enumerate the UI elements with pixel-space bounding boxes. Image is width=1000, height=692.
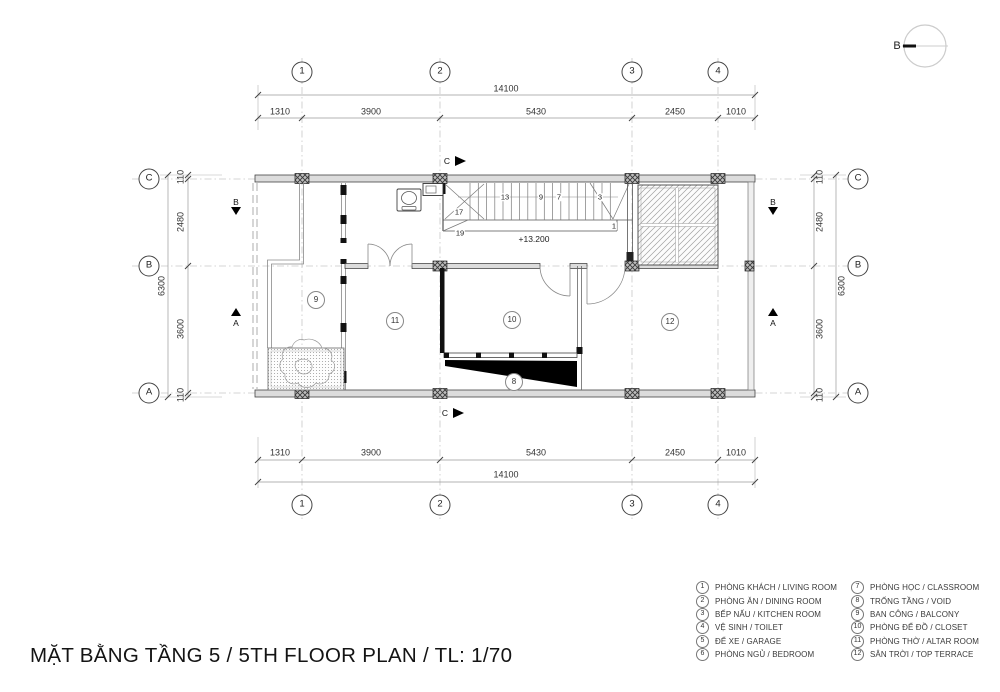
section-c-bottom-label: C [442, 408, 448, 418]
legend-label: PHÒNG ĂN / DINING ROOM [715, 597, 822, 606]
dim-top-seg-4: 1010 [726, 108, 746, 117]
legend-num: 8 [851, 595, 864, 608]
dim-right-seg-3: 110 [816, 388, 825, 402]
floor-plan-sheet: 1 2 3 4 1 2 3 4 C B A C B A 14100 1310 3… [0, 0, 1000, 692]
room-label-altar-room: 11 [386, 312, 404, 330]
room-label-closet: 10 [503, 311, 521, 329]
legend-item-classroom: 7 PHÒNG HỌC / CLASSROOM [851, 581, 1000, 594]
door-closet [540, 266, 570, 296]
dim-bottom-seg-2: 5430 [526, 449, 546, 458]
grid-bubble-2-bottom: 2 [430, 495, 451, 516]
grid-bubble-3-top: 3 [622, 62, 643, 83]
sheet-title: MẶT BẰNG TẦNG 5 / 5TH FLOOR PLAN / TL: 1… [30, 644, 512, 668]
north-symbol-label: B [893, 40, 900, 52]
legend-label: BAN CÔNG / BALCONY [870, 610, 959, 619]
legend-column-right: 7 PHÒNG HỌC / CLASSROOM 8 TRỐNG TẦNG / V… [851, 581, 1000, 661]
legend-item-void: 8 TRỐNG TẦNG / VOID [851, 594, 1000, 607]
legend-label: TRỐNG TẦNG / VOID [870, 597, 951, 606]
grid-bubble-a-left: A [139, 383, 160, 404]
section-a-left-label: A [233, 318, 239, 328]
toilet-fixture [397, 189, 421, 211]
dim-left-seg-1: 2480 [177, 212, 186, 232]
grid-bubble-b-right: B [848, 256, 869, 277]
stair-tread-13: 13 [500, 193, 510, 201]
dim-top-seg-0: 1310 [270, 108, 290, 117]
grid-lines [132, 58, 868, 522]
level-annotation: +13.200 [519, 234, 550, 244]
stair-tread-19: 19 [455, 229, 465, 237]
legend-num: 3 [696, 608, 709, 621]
legend-label: ĐỂ XE / GARAGE [715, 637, 781, 646]
stair-tread-17: 17 [454, 208, 464, 216]
dim-bottom-seg-3: 2450 [665, 449, 685, 458]
legend-item-altar-room: 11 PHÒNG THỜ / ALTAR ROOM [851, 635, 1000, 648]
dim-right-overall: 6300 [838, 276, 847, 296]
legend-num: 4 [696, 621, 709, 634]
legend-num: 9 [851, 608, 864, 621]
legend-num: 2 [696, 595, 709, 608]
dim-left-seg-2: 3600 [177, 319, 186, 339]
north-symbol [902, 25, 948, 67]
legend-num: 10 [851, 621, 864, 634]
stair-tread-3: 3 [597, 193, 603, 201]
dim-bottom-seg-0: 1310 [270, 449, 290, 458]
legend-item-closet: 10 PHÒNG ĐỂ ĐỒ / CLOSET [851, 621, 1000, 634]
section-b-right-label: B [770, 197, 776, 207]
dim-bottom-seg-4: 1010 [726, 449, 746, 458]
double-door [368, 244, 412, 266]
legend-num: 12 [851, 648, 864, 661]
section-b-left-label: B [233, 197, 239, 207]
dimension-ticks [165, 92, 839, 485]
legend-label: PHÒNG THỜ / ALTAR ROOM [870, 637, 979, 646]
grid-bubble-b-left: B [139, 256, 160, 277]
dim-top-seg-1: 3900 [361, 108, 381, 117]
legend-num: 6 [696, 648, 709, 661]
balcony-parapet [268, 183, 304, 348]
room-label-void: 8 [505, 373, 523, 391]
legend-label: PHÒNG ĐỂ ĐỒ / CLOSET [870, 623, 968, 632]
dim-top-seg-3: 2450 [665, 108, 685, 117]
dim-top-overall: 14100 [493, 85, 518, 94]
legend-item-balcony: 9 BAN CÔNG / BALCONY [851, 608, 1000, 621]
legend-num: 1 [696, 581, 709, 594]
grid-bubble-a-right: A [848, 383, 869, 404]
legend-label: SÂN TRỜI / TOP TERRACE [870, 650, 973, 659]
dim-bottom-overall: 14100 [493, 471, 518, 480]
stair-tread-1: 1 [611, 222, 617, 230]
cistern-box [423, 184, 443, 196]
room-label-balcony: 9 [307, 291, 325, 309]
legend-label: PHÒNG HỌC / CLASSROOM [870, 583, 979, 592]
legend-label: VỆ SINH / TOILET [715, 623, 783, 632]
grid-bubble-4-bottom: 4 [708, 495, 729, 516]
grid-bubble-1-bottom: 1 [292, 495, 313, 516]
dim-right-seg-2: 3600 [816, 319, 825, 339]
stair-tread-7: 7 [556, 193, 562, 201]
section-c-top-label: C [444, 156, 450, 166]
dim-left-overall: 6300 [158, 276, 167, 296]
legend-label: BẾP NẤU / KITCHEN ROOM [715, 610, 821, 619]
grid-bubble-4-top: 4 [708, 62, 729, 83]
grid-bubble-c-right: C [848, 169, 869, 190]
grid-bubble-3-bottom: 3 [622, 495, 643, 516]
legend-num: 7 [851, 581, 864, 594]
dim-bottom-seg-1: 3900 [361, 449, 381, 458]
legend-num: 11 [851, 635, 864, 648]
legend-item-top-terrace: 12 SÂN TRỜI / TOP TERRACE [851, 648, 1000, 661]
section-a-right-label: A [770, 318, 776, 328]
skylight [638, 185, 718, 265]
dim-right-seg-1: 2480 [816, 212, 825, 232]
legend-label: PHÒNG NGỦ / BEDROOM [715, 650, 814, 659]
room-label-top-terrace: 12 [661, 313, 679, 331]
planter [268, 339, 344, 390]
legend-num: 5 [696, 635, 709, 648]
dim-top-seg-2: 5430 [526, 108, 546, 117]
legend-label: PHÒNG KHÁCH / LIVING ROOM [715, 583, 837, 592]
grid-bubble-c-left: C [139, 169, 160, 190]
stair-tread-9: 9 [538, 193, 544, 201]
door-terrace [587, 266, 625, 304]
dimension-lines [160, 85, 846, 488]
grid-bubble-2-top: 2 [430, 62, 451, 83]
dim-left-seg-3: 110 [177, 388, 186, 402]
dim-right-seg-0: 110 [816, 170, 825, 184]
dim-left-seg-0: 110 [177, 170, 186, 184]
grid-bubble-1-top: 1 [292, 62, 313, 83]
